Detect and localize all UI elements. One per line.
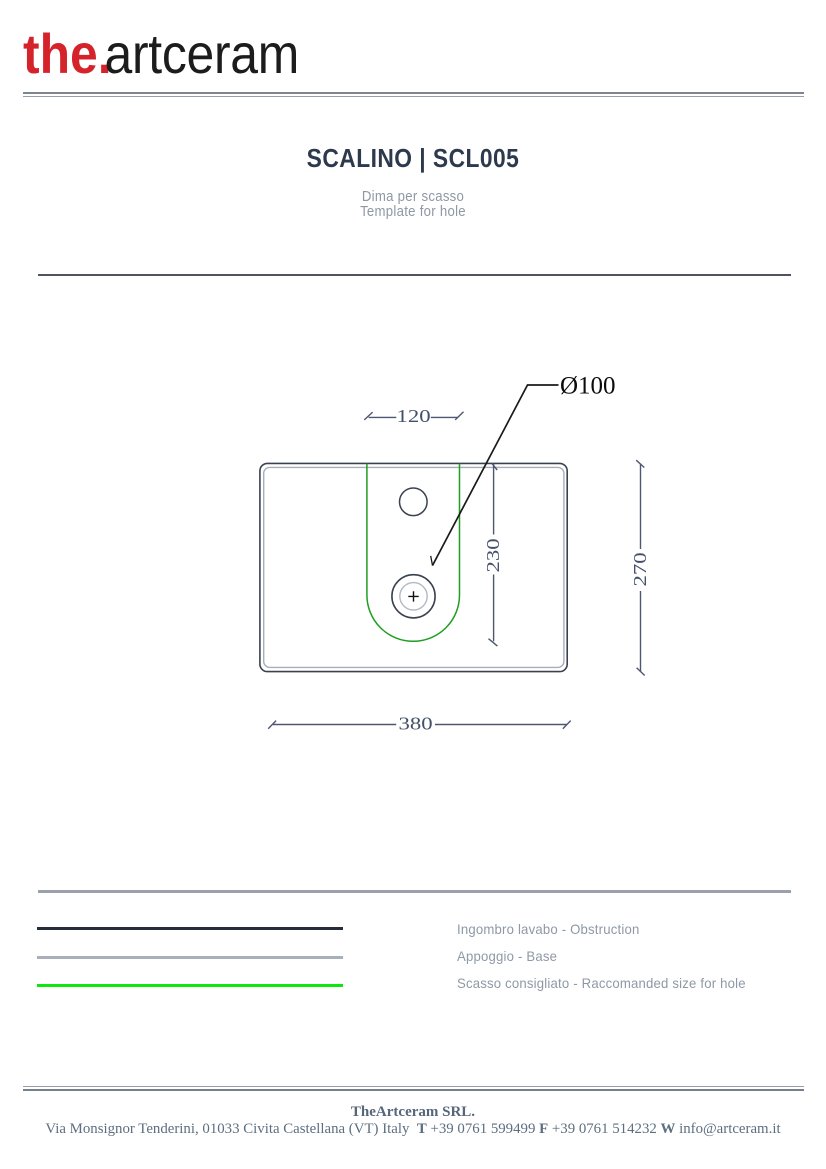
svg-text:120: 120 [396, 408, 430, 427]
svg-text:230: 230 [484, 538, 503, 572]
svg-text:270: 270 [631, 552, 650, 586]
svg-text:Ø100: Ø100 [560, 373, 616, 400]
svg-text:380: 380 [398, 715, 432, 734]
